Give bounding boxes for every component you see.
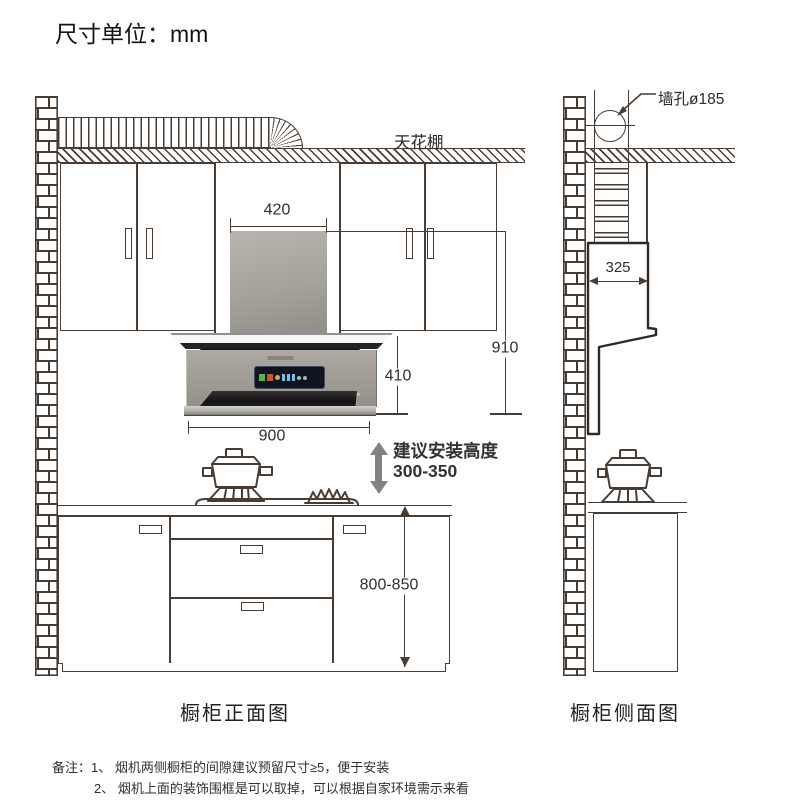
kick-plate: [62, 663, 446, 672]
hood-glass-canopy: [170, 333, 393, 349]
cabinet-handle: [125, 228, 132, 259]
dim-arrow-left: [589, 277, 598, 285]
brick-wall-front: [35, 96, 58, 676]
panel-dot: [303, 376, 307, 380]
dim-tick: [188, 421, 189, 434]
wall-hole-label: 墙孔ø185: [658, 87, 724, 109]
cabinet-door-divider: [136, 163, 138, 331]
dim-total-height: 910: [489, 341, 522, 358]
install-height-label: 建议安装高度: [393, 438, 498, 463]
ceiling-label: 天花棚: [394, 129, 444, 153]
dim-tick: [369, 421, 370, 434]
exhaust-duct-front: [58, 117, 271, 148]
ceiling-front: [58, 148, 525, 163]
drawer-line: [169, 538, 334, 540]
stove-and-pot-front: [138, 443, 378, 507]
middle-bay-line-left: [214, 163, 216, 334]
dim-hood-height: 410: [382, 369, 415, 386]
drawer-line: [169, 597, 334, 599]
dim-tick: [373, 413, 408, 414]
note-line-1: 备注：1、 烟机两侧橱柜的间隙建议预留尺寸≥5，便于安装: [52, 757, 389, 776]
drawer-handle: [240, 545, 263, 554]
installation-diagram: 尺寸单位：mm 天花棚 420 910 410: [0, 0, 800, 800]
chimney-cover-edge-side: [646, 163, 648, 243]
door-handle: [343, 525, 366, 534]
dim-extension-line: [327, 231, 505, 232]
drawer-handle: [241, 602, 264, 611]
duct-rungs: [595, 168, 628, 242]
hood-bottom-edge: [184, 406, 376, 416]
dim-tick: [230, 218, 231, 233]
install-height-range: 300-350: [393, 461, 457, 482]
panel-icon-green: [259, 374, 265, 381]
dim-line: [591, 281, 646, 282]
base-cabinet-side: [593, 513, 678, 672]
dim-tick: [490, 413, 522, 414]
hood-intake-recess: [200, 391, 357, 406]
panel-digit: [282, 374, 285, 381]
panel-dot: [297, 376, 301, 380]
cabinet-handle: [146, 228, 153, 259]
countertop-side: [588, 502, 687, 513]
panel-icon-orange: [275, 375, 280, 380]
dim-arrow-right: [639, 277, 648, 285]
pot-side: [588, 443, 688, 504]
hood-control-panel: [254, 366, 325, 389]
upper-cabinet-right: [340, 163, 497, 331]
cabinet-handle: [406, 228, 413, 259]
dim-arrow-down: [400, 657, 410, 667]
dim-depth: 325: [602, 260, 633, 276]
dim-arrow-up: [400, 506, 410, 516]
dim-line: [230, 226, 327, 227]
panel-icon-red: [267, 374, 273, 381]
unit-title: 尺寸单位：mm: [55, 15, 208, 49]
ceiling-side: [586, 148, 735, 163]
door-handle: [139, 525, 162, 534]
note-line-2: 2、 烟机上面的装饰围框是可以取掉，可以根据自家环境需示来看: [94, 778, 469, 797]
wall-hole-leader: [612, 84, 660, 118]
duct-elbow: [270, 117, 303, 149]
hood-brand-logo: [267, 356, 294, 360]
dim-counter-height: 800-850: [357, 578, 422, 595]
cabinet-handle: [427, 228, 434, 259]
dim-line: [505, 231, 506, 414]
front-view-caption: 橱柜正面图: [160, 697, 310, 726]
side-view-caption: 橱柜侧面图: [545, 697, 705, 726]
panel-digit: [292, 374, 295, 381]
hood-chimney: [230, 231, 327, 335]
dim-chimney-width: 420: [261, 203, 294, 220]
panel-digit: [287, 374, 290, 381]
cabinet-door-divider: [424, 163, 426, 331]
